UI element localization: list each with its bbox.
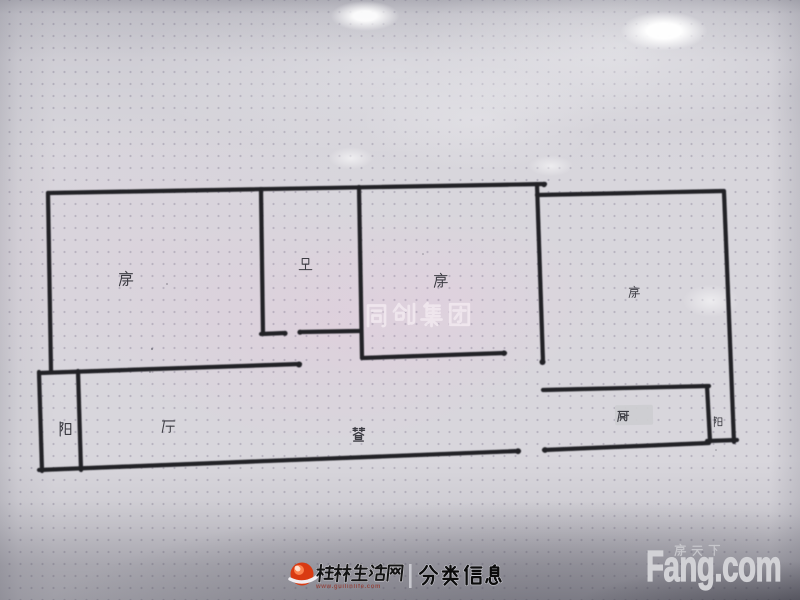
svg-text:www.guilinlife.com: www.guilinlife.com	[315, 584, 381, 590]
